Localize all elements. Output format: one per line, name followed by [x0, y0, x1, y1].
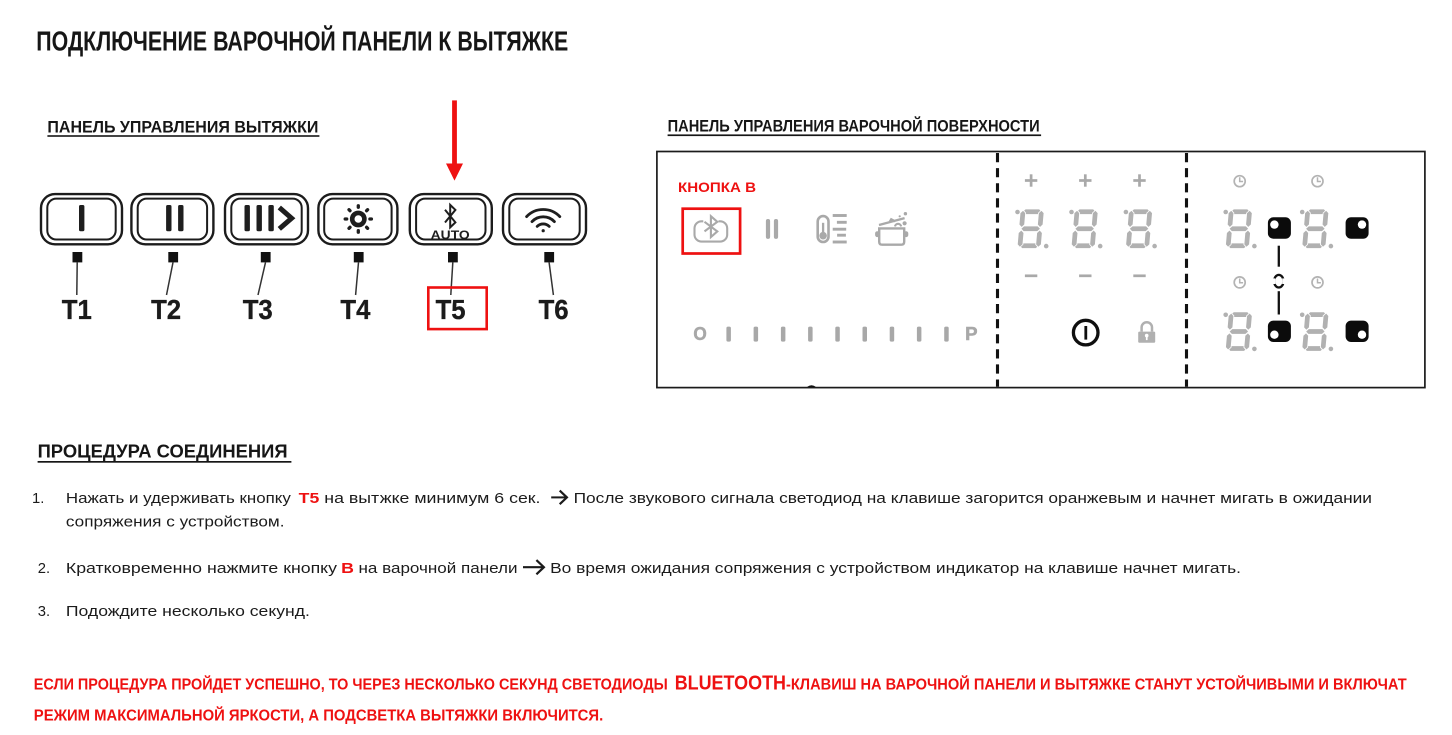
svg-text:2.: 2.	[38, 561, 50, 577]
svg-text:Т5: Т5	[299, 491, 320, 507]
svg-text:ПОДКЛЮЧЕНИЕ ВАРОЧНОЙ ПАНЕЛИ К: ПОДКЛЮЧЕНИЕ ВАРОЧНОЙ ПАНЕЛИ К ВЫТЯЖКЕ	[36, 26, 568, 57]
svg-text:O: O	[693, 324, 706, 344]
svg-text:Нажать и удерживать кнопку: Нажать и удерживать кнопку	[66, 491, 292, 507]
svg-text:ПАНЕЛЬ УПРАВЛЕНИЯ ВАРОЧНОЙ ПОВ: ПАНЕЛЬ УПРАВЛЕНИЯ ВАРОЧНОЙ ПОВЕРХНОСТИ	[668, 117, 1040, 136]
svg-text:на варочной панели: на варочной панели	[359, 561, 518, 577]
svg-text:T1: T1	[62, 294, 92, 325]
svg-text:Во время ожидания сопряжения с: Во время ожидания сопряжения с устройств…	[550, 561, 1241, 577]
svg-text:3.: 3.	[38, 604, 50, 620]
svg-text:Подождите несколько секунд.: Подождите несколько секунд.	[66, 604, 310, 620]
svg-text:T4: T4	[340, 294, 370, 325]
svg-text:ПРОЦЕДУРА СОЕДИНЕНИЯ: ПРОЦЕДУРА СОЕДИНЕНИЯ	[38, 441, 288, 462]
svg-text:КНОПКА B: КНОПКА B	[678, 179, 756, 195]
svg-text:на вытжке минимум 6 сек.: на вытжке минимум 6 сек.	[324, 491, 540, 507]
svg-text:BLUETOOTH: BLUETOOTH	[675, 672, 786, 694]
svg-text:сопряжения с устройством.: сопряжения с устройством.	[66, 515, 285, 531]
svg-text:-КЛАВИШ НА ВАРОЧНОЙ ПАНЕЛИ И В: -КЛАВИШ НА ВАРОЧНОЙ ПАНЕЛИ И ВЫТЯЖКЕ СТА…	[786, 674, 1407, 693]
svg-text:1.: 1.	[32, 491, 44, 507]
svg-text:T2: T2	[151, 294, 181, 325]
svg-text:РЕЖИМ МАКСИМАЛЬНОЙ ЯРКОСТИ, А: РЕЖИМ МАКСИМАЛЬНОЙ ЯРКОСТИ, А ПОДСВЕТКА …	[34, 705, 603, 724]
svg-text:ЕСЛИ ПРОЦЕДУРА ПРОЙДЕТ УСПЕШНО: ЕСЛИ ПРОЦЕДУРА ПРОЙДЕТ УСПЕШНО, ТО ЧЕРЕЗ…	[34, 674, 668, 693]
svg-text:T6: T6	[539, 294, 569, 325]
svg-text:T3: T3	[243, 294, 273, 325]
svg-text:T5: T5	[436, 294, 466, 325]
svg-text:B: B	[341, 561, 354, 577]
svg-text:Кратковременно нажмите кнопку: Кратковременно нажмите кнопку	[66, 561, 338, 577]
svg-text:P: P	[965, 324, 977, 344]
svg-text:ПАНЕЛЬ УПРАВЛЕНИЯ ВЫТЯЖКИ: ПАНЕЛЬ УПРАВЛЕНИЯ ВЫТЯЖКИ	[47, 118, 318, 137]
svg-text:AUTO: AUTO	[431, 228, 470, 242]
svg-text:После звукового сигнала светод: После звукового сигнала светодиод на кла…	[574, 491, 1372, 507]
